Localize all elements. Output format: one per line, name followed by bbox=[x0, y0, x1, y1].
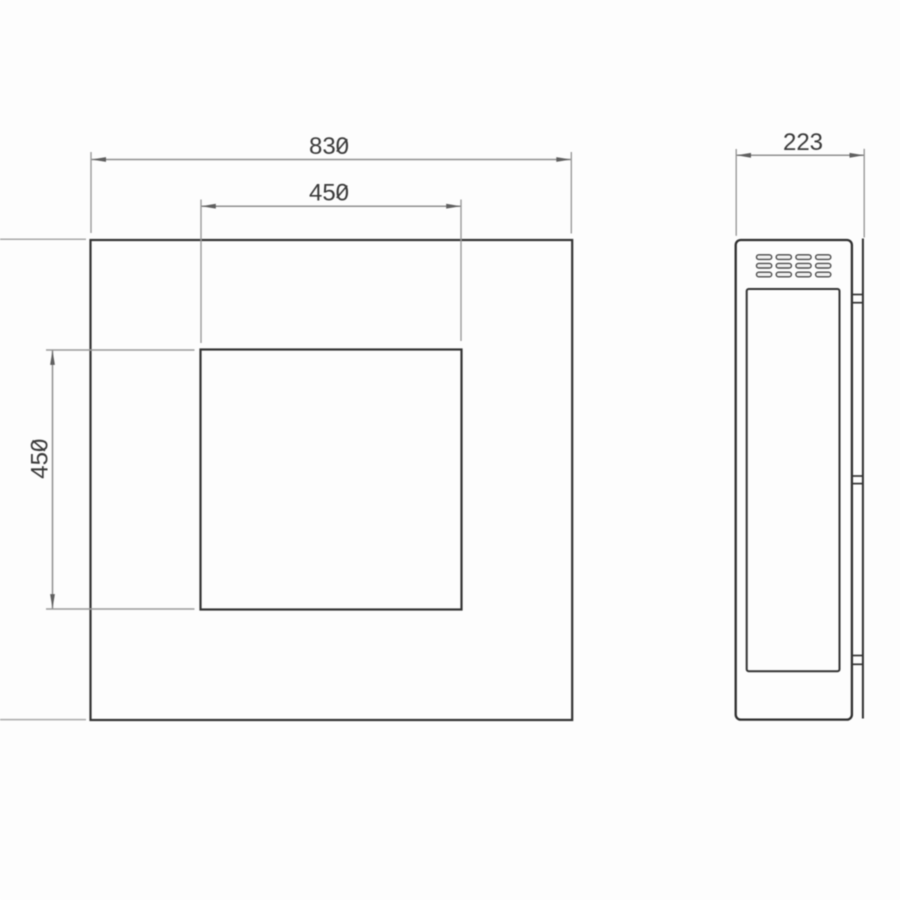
svg-text:830: 830 bbox=[309, 133, 349, 160]
svg-text:450: 450 bbox=[309, 179, 349, 206]
svg-text:450: 450 bbox=[27, 439, 54, 479]
svg-text:223: 223 bbox=[783, 129, 823, 156]
